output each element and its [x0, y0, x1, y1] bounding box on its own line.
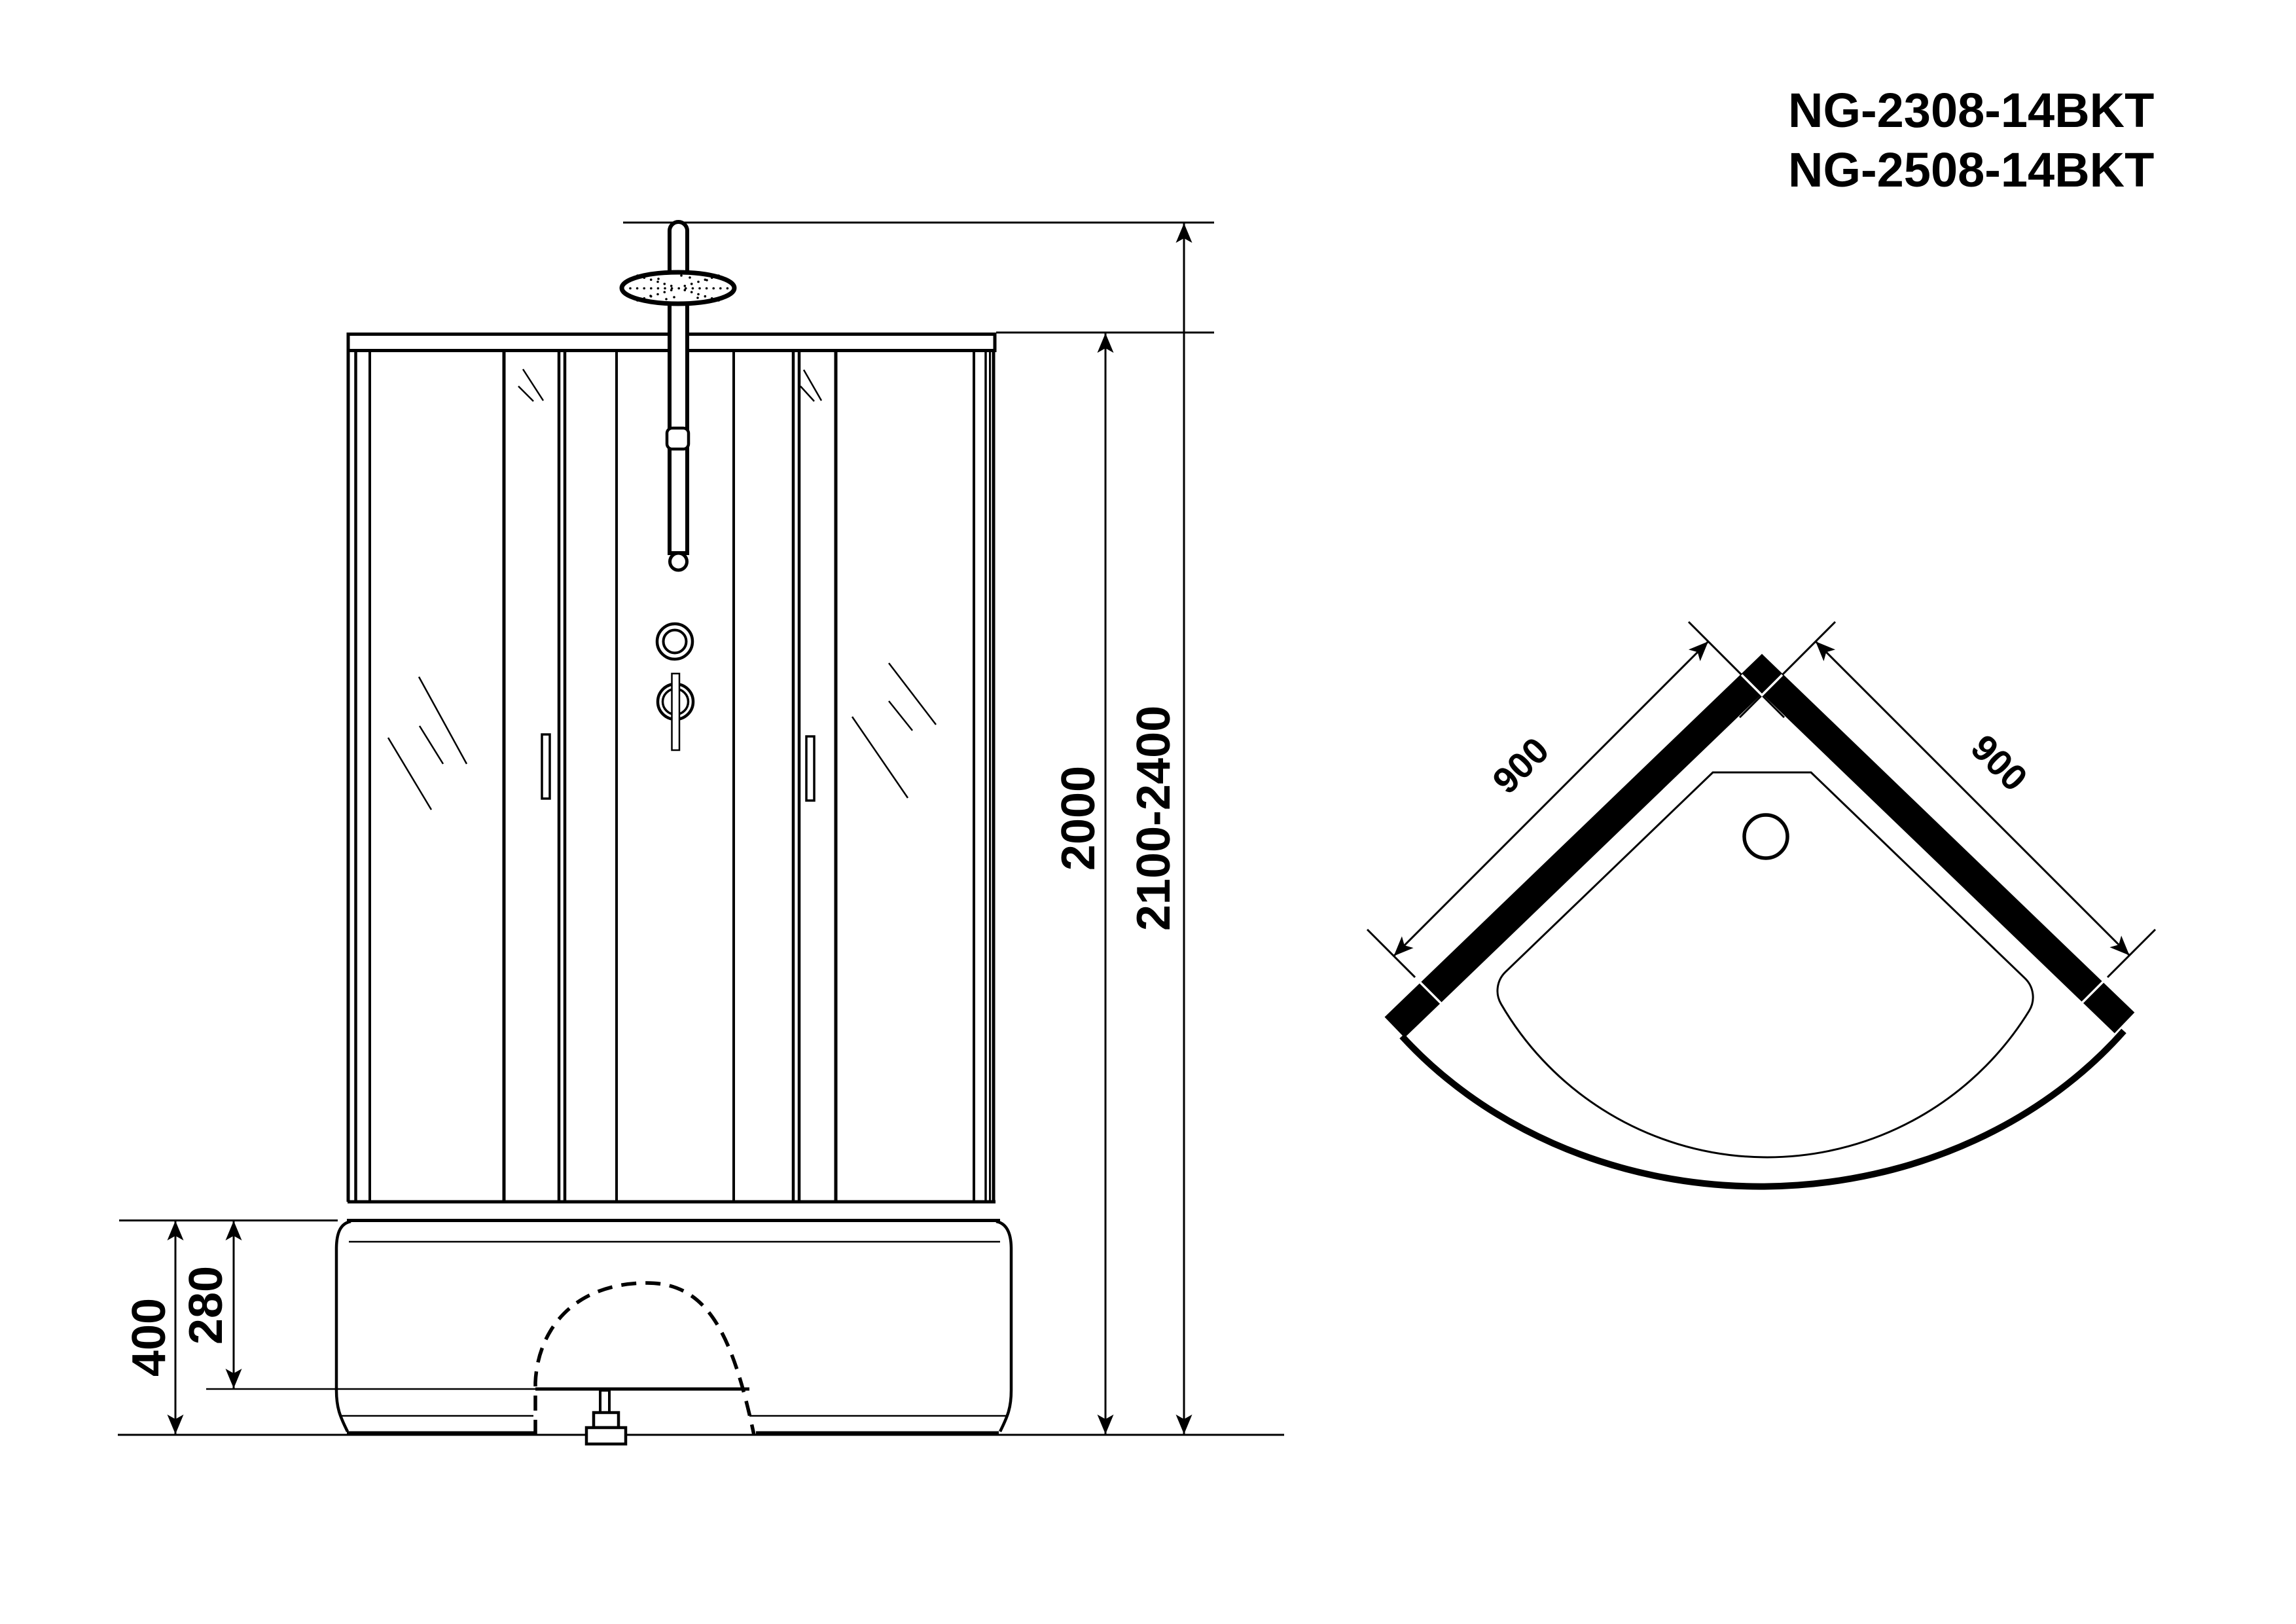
svg-text:NG-2508-14BKT: NG-2508-14BKT: [1788, 143, 2154, 197]
svg-text:2100-2400: 2100-2400: [1128, 706, 1180, 931]
svg-text:NG-2308-14BKT: NG-2308-14BKT: [1788, 83, 2154, 137]
svg-text:2000: 2000: [1052, 766, 1105, 871]
svg-text:400: 400: [123, 1298, 175, 1377]
svg-text:280: 280: [180, 1266, 232, 1344]
